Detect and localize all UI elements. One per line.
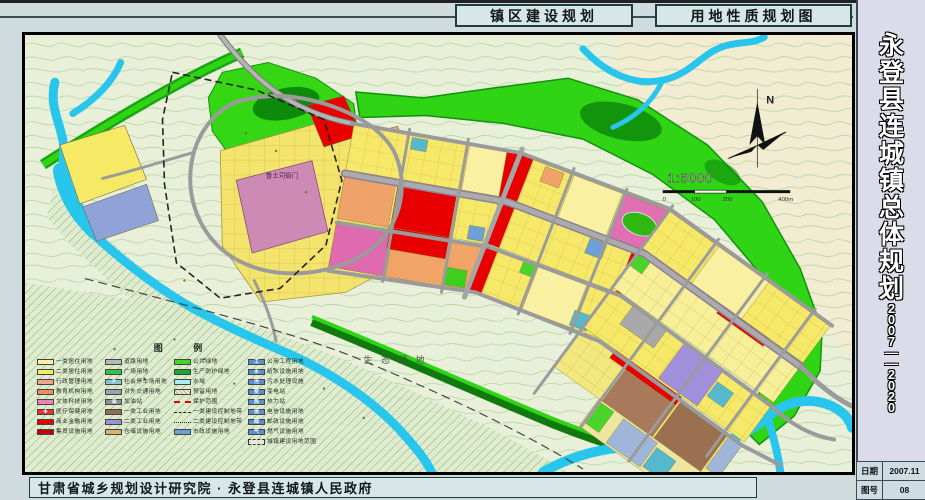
legend-swatch-icon (37, 389, 54, 395)
legend-item: 生产防护绿地 (174, 367, 245, 377)
legend-swatch-icon: 油 (105, 399, 122, 405)
legend-swatch-icon: 热 (248, 399, 265, 405)
legend-item: 广场用地 (105, 367, 170, 377)
legend-label: 水域 (193, 379, 205, 385)
legend-item: ✚医疗保健用地 (37, 407, 102, 417)
legend-item: 二类建设控制地带 (174, 417, 245, 427)
plan-title-char: 总 (879, 195, 904, 222)
legend-swatch-icon (174, 429, 191, 435)
legend-item: 市政设施用地 (174, 427, 245, 437)
legend-label: 二类工业用地 (124, 419, 161, 425)
sheet-title-box: 用地性质规划图 (655, 4, 852, 27)
legend-item: 气燃气设施用地 (248, 427, 319, 437)
legend-swatch-icon (174, 422, 191, 423)
legend-label: 电信设施用地 (267, 409, 304, 415)
legend-column: 工公用工程用地水给水设施用地污污水处理设施变变电站热热力站信电信设施用地邮邮政设… (248, 357, 319, 447)
legend-column: 公共绿地生产防护绿地水域预留用地保护范围一类建设控制地带二类建设控制地带市政设施… (174, 357, 245, 447)
date-label: 日期 (857, 462, 883, 481)
legend-label: 二类居住用地 (56, 369, 93, 375)
legend-label: 仓储设施用地 (124, 429, 161, 435)
legend-swatch-icon (105, 359, 122, 365)
legend-item: 热热力站 (248, 397, 319, 407)
credit-text: 甘肃省城乡规划设计研究院 · 永登县连城镇人民政府 (38, 478, 373, 497)
legend-swatch-icon (105, 419, 122, 425)
plan-title-char: 划 (879, 276, 904, 303)
legend-label: 一类工业用地 (124, 409, 161, 415)
plan-title-char: 镇 (879, 168, 904, 195)
legend-swatch-icon (174, 369, 191, 375)
legend-item: 一类居住用地 (37, 357, 102, 367)
legend-item: 变变电站 (248, 387, 319, 397)
legend-label: 热力站 (267, 399, 286, 405)
legend-swatch-icon: 工 (248, 359, 265, 365)
plan-title-char: 登 (879, 60, 904, 87)
legend-item: 一类建设控制地带 (174, 407, 245, 417)
legend-swatch-icon: 信 (248, 409, 265, 415)
legend-label: 广场用地 (124, 369, 149, 375)
yamen-label: 鲁土司衙门 (266, 170, 298, 179)
legend-item: 仓储设施用地 (105, 427, 170, 437)
legend-item: 集贸设施用地 (37, 427, 102, 437)
legend-label: 一类居住用地 (56, 359, 93, 365)
sheet-number-label: 图号 (857, 481, 883, 500)
legend-label: 行政管理用地 (56, 379, 93, 385)
legend-swatch-icon: P (105, 379, 122, 385)
legend-label: 教育机构用地 (56, 389, 93, 395)
legend-swatch-icon: 变 (248, 389, 265, 395)
legend-item: 文体科技用地 (37, 397, 102, 407)
legend-column: 道路用地广场用地P社会停车场用地对外交通用地油加油站一类工业用地二类工业用地仓储… (105, 357, 170, 447)
legend-swatch-icon (174, 359, 191, 365)
legend-item: 道路用地 (105, 357, 170, 367)
legend-item: P社会停车场用地 (105, 377, 170, 387)
legend-swatch-icon: 污 (248, 379, 265, 385)
legend-label: 商业金融用地 (56, 419, 93, 425)
legend-item: 行政管理用地 (37, 377, 102, 387)
legend-label: 预留用地 (193, 389, 218, 395)
legend-item: 水给水设施用地 (248, 367, 319, 377)
legend-label: 给水设施用地 (267, 369, 304, 375)
legend-item: 邮邮政设施用地 (248, 417, 319, 427)
scale-tick-label: 100 (691, 197, 702, 203)
legend-swatch-icon (105, 389, 122, 395)
legend-item: 商业金融用地 (37, 417, 102, 427)
legend-item: 水域 (174, 377, 245, 387)
legend-label: 二类建设控制地带 (193, 419, 242, 425)
legend-label: 对外交通用地 (124, 389, 161, 395)
legend-label: 道路用地 (124, 359, 149, 365)
legend-label: 公用工程用地 (267, 359, 304, 365)
legend-label: 医疗保健用地 (56, 409, 93, 415)
legend-label: 燃气设施用地 (267, 429, 304, 435)
plan-title-char: 连 (879, 114, 904, 141)
sheet-title: 用地性质规划图 (691, 6, 817, 26)
legend-swatch-icon (37, 359, 54, 365)
legend-swatch-icon: 邮 (248, 419, 265, 425)
legend-swatch-icon (37, 399, 54, 405)
date-value: 2007.11 (883, 462, 925, 481)
legend-label: 变电站 (267, 389, 286, 395)
series-title-box: 镇区建设规划 (455, 4, 633, 27)
legend-item: 二类工业用地 (105, 417, 170, 427)
legend-label: 加油站 (124, 399, 143, 405)
title-sidebar: 永登县连城镇总体规划2007——2020 日期 2007.11 图号 08 (856, 0, 925, 500)
legend-swatch-icon: 水 (248, 369, 265, 375)
legend-item: 污污水处理设施 (248, 377, 319, 387)
legend-label: 市政设施用地 (193, 429, 230, 435)
plan-years-char: 0 (888, 402, 895, 413)
legend-column: 一类居住用地二类居住用地行政管理用地教育机构用地文体科技用地✚医疗保健用地商业金… (37, 357, 102, 447)
legend-label: 一类建设控制地带 (193, 409, 242, 415)
legend-swatch-icon: ✚ (37, 409, 54, 415)
legend-item: 预留用地 (174, 387, 245, 397)
sheet-number-value: 08 (883, 481, 925, 500)
legend-item: 保护范围 (174, 397, 245, 407)
legend-label: 公共绿地 (193, 359, 218, 365)
credit-box: 甘肃省城乡规划设计研究院 · 永登县连城镇人民政府 (29, 477, 757, 498)
legend-label: 生产防护绿地 (193, 369, 230, 375)
legend-label: 保护范围 (193, 399, 218, 405)
legend-swatch-icon (174, 412, 191, 413)
legend-item: 公共绿地 (174, 357, 245, 367)
legend-swatch-icon (37, 369, 54, 375)
legend-item: 对外交通用地 (105, 387, 170, 397)
legend-item: 教育机构用地 (37, 387, 102, 397)
legend-swatch-icon: 气 (248, 429, 265, 435)
legend-label: 文体科技用地 (56, 399, 93, 405)
legend-label: 污水处理设施 (267, 379, 304, 385)
plan-title-char: 规 (879, 249, 904, 276)
north-label: N (766, 95, 774, 107)
legend-swatch-icon (174, 389, 191, 395)
plan-map: 鲁土司衙门 生 态 绿 地 N 1:5000 0100200400m 图 例 一… (22, 32, 855, 475)
legend-label: 集贸设施用地 (56, 429, 93, 435)
legend-item: 一类工业用地 (105, 407, 170, 417)
legend-title: 图 例 (37, 341, 319, 354)
legend-item: 油加油站 (105, 397, 170, 407)
legend-label: 邮政设施用地 (267, 419, 304, 425)
stamp-table: 日期 2007.11 图号 08 (856, 461, 925, 500)
plan-title-vertical: 永登县连城镇总体规划2007——2020 (858, 33, 925, 413)
plan-title-char: 永 (879, 33, 904, 60)
legend-item: 二类居住用地 (37, 367, 102, 377)
legend-label: 城镇建设用地范围 (267, 439, 316, 445)
legend: 图 例 一类居住用地二类居住用地行政管理用地教育机构用地文体科技用地✚医疗保健用… (37, 341, 319, 447)
legend-swatch-icon (37, 429, 54, 435)
scale-tick-label: 400m (778, 197, 793, 203)
legend-swatch-icon (105, 369, 122, 375)
legend-columns: 一类居住用地二类居住用地行政管理用地教育机构用地文体科技用地✚医疗保健用地商业金… (37, 357, 319, 447)
legend-swatch-icon (105, 409, 122, 415)
scale-tick-label: 200 (722, 197, 733, 203)
plan-title-char: 城 (879, 141, 904, 168)
legend-swatch-icon (174, 401, 191, 403)
legend-item: 工公用工程用地 (248, 357, 319, 367)
plan-title-char: 县 (879, 87, 904, 114)
series-title: 镇区建设规划 (490, 6, 598, 26)
legend-label: 社会停车场用地 (124, 379, 167, 385)
page-top-rule (0, 0, 925, 3)
legend-swatch-icon (174, 379, 191, 385)
legend-swatch-icon (37, 419, 54, 425)
legend-item: 城镇建设用地范围 (248, 437, 319, 447)
scale-text: 1:5000 (668, 170, 714, 185)
legend-swatch-icon (105, 429, 122, 435)
plan-title-char: 体 (879, 222, 904, 249)
legend-swatch-icon (248, 439, 265, 445)
eco-green-label: 生 态 绿 地 (364, 354, 428, 365)
legend-swatch-icon (37, 379, 54, 385)
legend-item: 信电信设施用地 (248, 407, 319, 417)
